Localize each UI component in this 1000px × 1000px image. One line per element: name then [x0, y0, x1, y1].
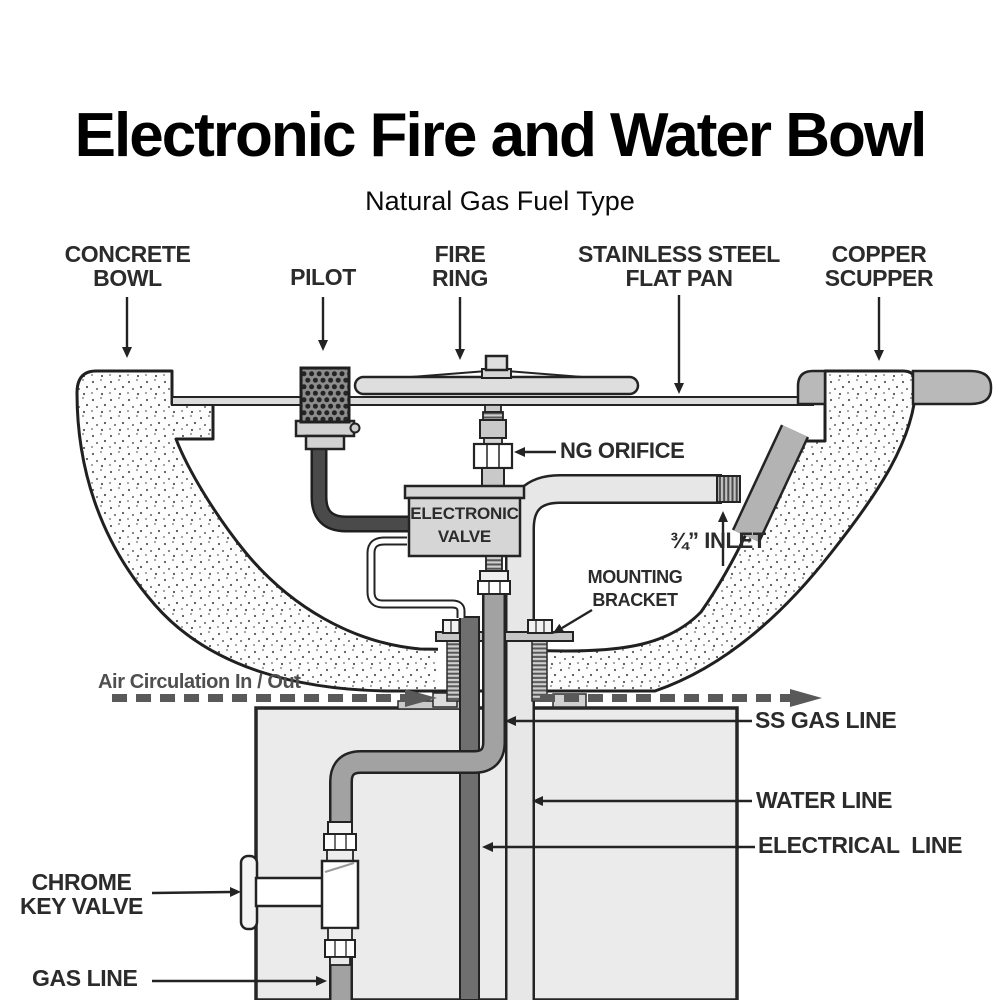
burner-stem	[474, 405, 512, 487]
label-fire-ring-line2: RING	[400, 267, 520, 291]
electrical-conduit	[460, 617, 479, 1000]
label-pilot-line1: PILOT	[262, 266, 384, 290]
label-pilot: PILOT	[262, 266, 384, 290]
copper-scupper-slab	[913, 371, 991, 404]
chrome-key-valve-arrow	[152, 892, 230, 893]
label-mounting-bracket-line1: MOUNTING	[585, 566, 685, 589]
label-chrome-key-valve: CHROME KEY VALVE	[14, 871, 149, 919]
electronic-valve-label: ELECTRONIC VALVE	[407, 503, 522, 549]
label-gas-line: GAS LINE	[32, 967, 137, 991]
label-water-line: WATER LINE	[756, 789, 892, 813]
pilot-burner	[296, 368, 360, 449]
pilot-tube	[319, 447, 409, 524]
fire-water-bowl-diagram: Electronic Fire and Water Bowl Natural G…	[0, 0, 1000, 1000]
label-electrical-line: ELECTRICAL LINE	[758, 834, 962, 858]
label-chrome-key-valve-line1: CHROME	[14, 871, 149, 895]
inlet-threads	[717, 476, 740, 502]
copper-scupper-left-piece	[798, 371, 825, 404]
label-flat-pan-line1: STAINLESS STEEL	[564, 243, 794, 267]
label-ss-gas-line: SS GAS LINE	[755, 709, 896, 733]
electronic-valve-label-line2: VALVE	[407, 526, 522, 549]
label-air-circulation: Air Circulation In / Out	[98, 672, 301, 693]
label-mounting-bracket-line2: BRACKET	[585, 589, 685, 612]
label-inlet: ¾” INLET	[670, 530, 766, 553]
label-fire-ring-line1: FIRE	[400, 243, 520, 267]
label-flat-pan-line2: FLAT PAN	[564, 267, 794, 291]
label-chrome-key-valve-line2: KEY VALVE	[14, 895, 149, 919]
label-ng-orifice: NG ORIFICE	[560, 440, 684, 463]
label-mounting-bracket: MOUNTING BRACKET	[585, 566, 685, 613]
label-concrete-bowl-line1: CONCRETE	[40, 243, 215, 267]
label-copper-scupper-line2: SCUPPER	[809, 267, 949, 291]
label-concrete-bowl: CONCRETE BOWL	[40, 243, 215, 291]
label-copper-scupper: COPPER SCUPPER	[809, 243, 949, 291]
flat-pan-shape	[172, 397, 813, 405]
fire-ring-assembly	[355, 356, 638, 394]
label-fire-ring: FIRE RING	[400, 243, 520, 291]
page-subtitle: Natural Gas Fuel Type	[0, 186, 1000, 217]
page-title: Electronic Fire and Water Bowl	[0, 100, 1000, 171]
label-copper-scupper-line1: COPPER	[809, 243, 949, 267]
electronic-valve-label-line1: ELECTRONIC	[407, 503, 522, 526]
label-flat-pan: STAINLESS STEEL FLAT PAN	[564, 243, 794, 291]
label-concrete-bowl-line2: BOWL	[40, 267, 215, 291]
